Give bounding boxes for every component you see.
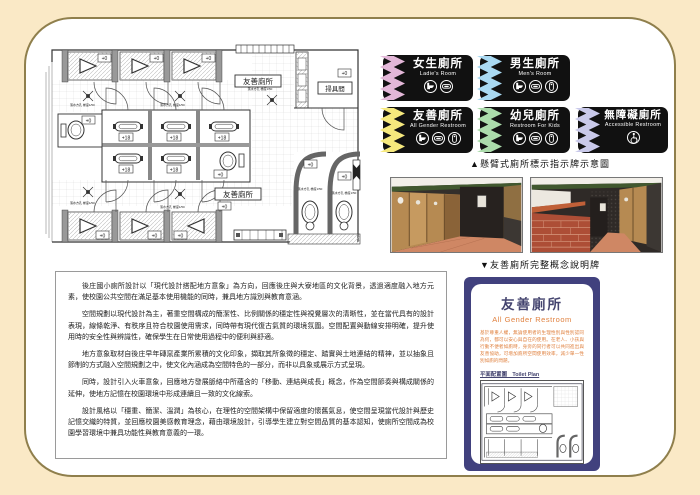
render-photos bbox=[390, 177, 663, 253]
photos-caption: ▼友善廁所完整概念說明牌 bbox=[430, 258, 650, 271]
sign-title: 友善廁所 bbox=[405, 110, 471, 123]
svg-text:落水方孔 梯度1/50: 落水方孔 梯度1/50 bbox=[70, 102, 95, 107]
poster-title: 友善廁所 bbox=[471, 293, 593, 313]
toilet-icon bbox=[513, 132, 526, 145]
urinal-icon bbox=[448, 132, 461, 145]
svg-text:落水方孔 梯度1/50: 落水方孔 梯度1/50 bbox=[298, 186, 323, 191]
floor-plan: +0 +0 +0 友善廁所 落水方孔 梯度1/50 +0 掃具間 bbox=[38, 42, 372, 258]
sign-accessible-restroom: 無障礙廁所 Accessible Restroom bbox=[578, 107, 668, 153]
sign-subtitle: Men's Room bbox=[502, 71, 568, 77]
curved-toilet-stalls: +0 +0 落水方孔 梯度1/50 落水方孔 梯度1/50 bbox=[288, 154, 360, 244]
plan-room-label-top: 友善廁所 bbox=[243, 76, 273, 86]
svg-text:+0: +0 bbox=[222, 204, 228, 210]
floor-plan-drawing: +0 +0 +0 友善廁所 落水方孔 梯度1/50 +0 掃具間 bbox=[38, 42, 372, 258]
svg-text:落水方孔 梯度1/50: 落水方孔 梯度1/50 bbox=[70, 200, 95, 205]
sign-title: 女生廁所 bbox=[405, 58, 471, 71]
sign-subtitle: Restroom For Kids bbox=[502, 123, 568, 129]
description-paragraph: 空間規劃以現代設計為主，著重空間構成的簡潔性、比例關係的穩定性與視覺層次的清晰性… bbox=[68, 309, 434, 343]
poster-subtitle: All Gender Restroom bbox=[471, 315, 593, 324]
description-paragraph: 設計風格以「穩重、簡潔、溫潤」為核心，在理性的空間架構中保留適度的懷舊氣息，使空… bbox=[68, 406, 434, 440]
svg-text:+0: +0 bbox=[154, 56, 160, 62]
description-paragraph: 後庄國小廁所設計以「現代設計搭配地方意象」為方向，回應後庄與大寮地區的文化背景，… bbox=[68, 281, 434, 303]
svg-text:+18: +18 bbox=[170, 135, 179, 141]
urinal-icon bbox=[545, 80, 558, 93]
squat-toilet-icon bbox=[529, 132, 542, 145]
all-gender-restroom-poster: 友善廁所 All Gender Restroom 基於尊重人權，無論使用者的生理… bbox=[464, 277, 600, 471]
svg-text:+18: +18 bbox=[218, 135, 227, 141]
svg-text:+0: +0 bbox=[218, 172, 224, 178]
poster-body-text: 基於尊重人權，無論使用者的生理性別與性別認同為何，都可以安心與自在的使用。在老人… bbox=[480, 329, 584, 365]
description-paragraph: 地方意象取材自後庄早年磚窯產業所累積的文化印象，擷取其所象徵的穩定、踏實與土地連… bbox=[68, 349, 434, 371]
squat-toilet-icon bbox=[440, 80, 453, 93]
sign-subtitle: All Gender Restroom bbox=[405, 123, 471, 129]
sign-title: 男生廁所 bbox=[502, 58, 568, 71]
squat-toilet-icon bbox=[432, 132, 445, 145]
plan-room-label-bottom: 友善廁所 bbox=[223, 189, 253, 199]
sign-mens-room: 男生廁所 Men's Room bbox=[480, 55, 570, 101]
svg-text:+0: +0 bbox=[86, 118, 92, 124]
urinal-icon bbox=[545, 132, 558, 145]
sign-title: 幼兒廁所 bbox=[502, 110, 568, 123]
sign-color-strip bbox=[380, 56, 405, 100]
poster-plan-label: 平面配置圖 Toilet Plan bbox=[480, 370, 593, 378]
svg-text:+0: +0 bbox=[178, 233, 184, 239]
svg-text:落水方孔 梯度1/50: 落水方孔 梯度1/50 bbox=[332, 190, 357, 195]
plan-drain-note: 落水方孔 梯度1/50 bbox=[248, 86, 273, 91]
wheelchair-icon bbox=[627, 131, 640, 144]
svg-text:+0: +0 bbox=[102, 56, 108, 62]
squat-toilet-icon bbox=[529, 80, 542, 93]
svg-text:+0: +0 bbox=[342, 71, 348, 77]
sign-subtitle: Accessible Restroom bbox=[600, 122, 666, 128]
render-photo-2 bbox=[530, 177, 663, 253]
svg-text:+0: +0 bbox=[152, 233, 158, 239]
sign-ladies-room: 女生廁所 Ladie's Room bbox=[383, 55, 473, 101]
design-description-box: 後庄國小廁所設計以「現代設計搭配地方意象」為方向，回應後庄與大寮地區的文化背景，… bbox=[55, 271, 447, 459]
sign-title: 無障礙廁所 bbox=[600, 110, 666, 122]
svg-text:+18: +18 bbox=[122, 135, 131, 141]
sign-color-strip bbox=[477, 56, 502, 100]
sign-board-group: 女生廁所 Ladie's Room 男生廁所 Men's Room 友善廁所 A… bbox=[383, 55, 670, 153]
sign-color-strip bbox=[575, 108, 600, 152]
signs-caption: ▲懸臂式廁所標示指示牌示意圖 bbox=[430, 157, 650, 170]
svg-text:+0: +0 bbox=[206, 56, 212, 62]
toilet-icon bbox=[424, 80, 437, 93]
toilet-icon bbox=[513, 80, 526, 93]
sign-subtitle: Ladie's Room bbox=[405, 71, 471, 77]
svg-text:+0: +0 bbox=[100, 233, 106, 239]
poster-inner-panel: 友善廁所 All Gender Restroom 基於尊重人權，無論使用者的生理… bbox=[471, 284, 593, 464]
plan-tool-room-label: 掃具間 bbox=[325, 84, 345, 93]
svg-text:落水方孔 梯度1/50: 落水方孔 梯度1/50 bbox=[160, 204, 185, 209]
sign-color-strip bbox=[477, 108, 502, 152]
sign-all-gender-restroom: 友善廁所 All Gender Restroom bbox=[383, 107, 473, 153]
svg-text:+18: +18 bbox=[122, 167, 131, 173]
presentation-board: { "plan": { "room_label_top": "友善廁所", "r… bbox=[0, 0, 700, 495]
sign-color-strip bbox=[380, 108, 405, 152]
poster-mini-floor-plan bbox=[480, 380, 584, 464]
svg-text:+18: +18 bbox=[170, 167, 179, 173]
svg-text:+0: +0 bbox=[308, 162, 314, 168]
description-paragraph: 同時，設計引入火車意象，回應地方發展脈絡中所蘊含的「移動、連結與成長」概念，作為… bbox=[68, 377, 434, 399]
svg-text:落水方孔 梯度1/50: 落水方孔 梯度1/50 bbox=[160, 102, 185, 107]
svg-text:+0: +0 bbox=[342, 174, 348, 180]
toilet-icon bbox=[416, 132, 429, 145]
sign-kids-restroom: 幼兒廁所 Restroom For Kids bbox=[480, 107, 570, 153]
left-toilet-stall: +0 bbox=[58, 114, 102, 147]
render-photo-1 bbox=[390, 177, 523, 253]
